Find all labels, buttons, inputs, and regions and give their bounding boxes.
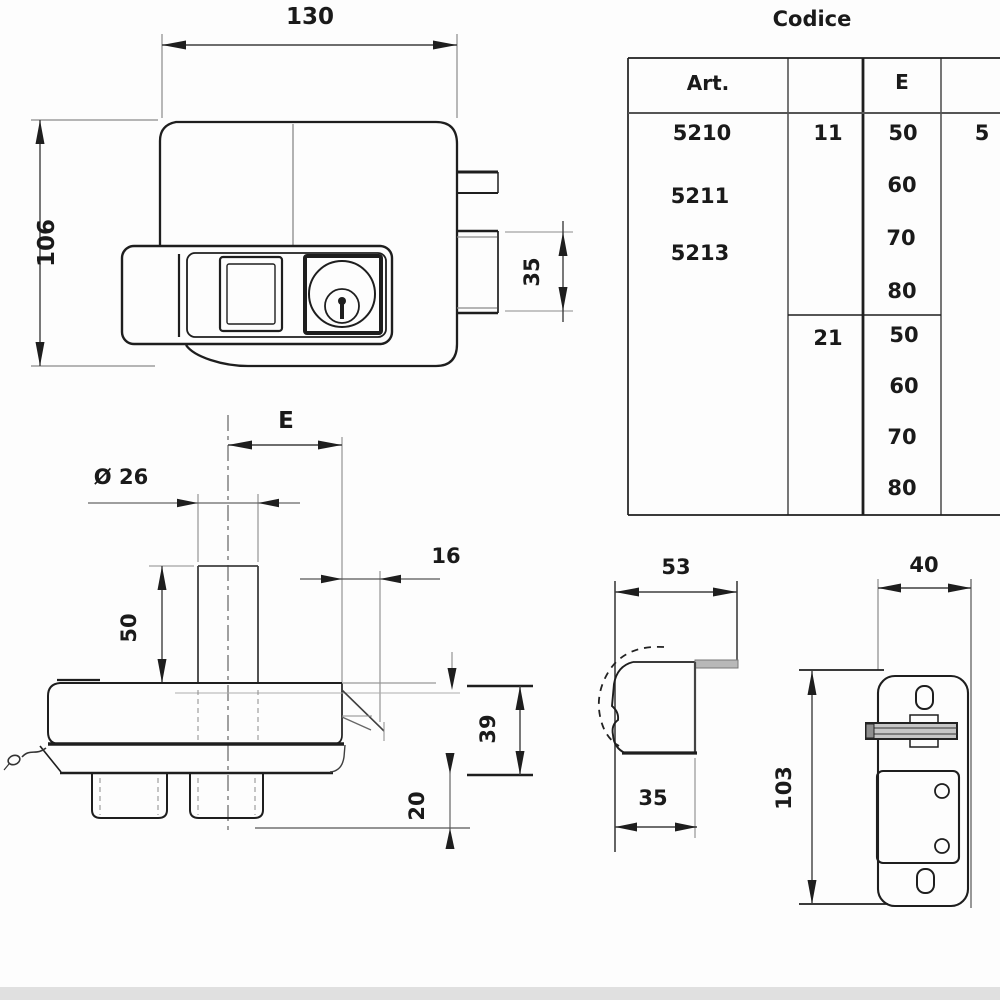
col-header-e: E [895,70,909,94]
col-header-art: Art. [687,71,730,95]
dim-height-103: 103 [772,670,888,904]
dim-feet-20: 20 [255,753,470,849]
dim-106-label: 106 [34,219,60,267]
codice-table: Codice Art. E 5210 5211 5213 11 50 60 70… [628,7,1000,515]
dim-cylinder-height-50: 50 [117,566,194,683]
dim-depth-53: 53 [615,555,737,852]
e-value: 70 [887,425,916,449]
e-value: 80 [887,476,916,500]
strike-side-view: 53 35 [599,555,738,852]
dim-20-label: 20 [405,791,429,820]
dim-latch-35: 35 [505,221,573,322]
latch-bar-tab-top [910,715,938,723]
dim-40-label: 40 [909,553,938,577]
latch-bar [866,723,957,739]
screw-hole [935,784,949,798]
technical-drawing-page: 130 106 [0,0,1000,1000]
article-code: 5213 [671,241,729,265]
article-code: 5211 [671,184,729,208]
latch-bar-tab-bottom [910,739,938,747]
mounting-slot-bottom [917,869,934,893]
mounting-foot-right [190,774,263,818]
group-key-21: 21 [813,326,842,350]
strike-plate [866,676,968,906]
dim-body-depth-39: 39 [448,652,534,775]
dim-backset-e: E [228,408,342,682]
dim-diameter-26: Ø 26 [88,465,300,562]
e-value: 60 [887,173,916,197]
e-value: 50 [888,121,917,145]
group-key-11: 11 [813,121,842,145]
keeper-tab [695,660,738,668]
article-code: 5210 [673,121,731,145]
front-view: 130 106 [31,4,573,366]
dim-width-130: 130 [162,4,457,118]
e-value: 70 [886,226,915,250]
extra-col-value: 5 [975,121,990,145]
dim-35-label: 35 [520,257,544,286]
lock-body-top-view [4,680,460,818]
control-panel [122,246,392,344]
cable-pigtail [4,748,46,770]
keyway-slot [340,301,344,319]
latch-bar-endcap [866,724,874,738]
table-title: Codice [773,7,852,31]
e-value: 50 [889,323,918,347]
bolt-bevel [342,690,384,731]
dim-103-label: 103 [772,766,796,810]
dim-e-label: E [278,408,294,434]
screw-hole [935,839,949,853]
e-value: 60 [889,374,918,398]
dim-39-label: 39 [476,714,500,743]
dim-53-label: 53 [661,555,690,579]
dim-diameter-label: Ø 26 [94,465,148,489]
page-bottom-edge [0,987,1000,1000]
lock-technical-drawing: 130 106 [0,0,1000,1000]
keeper-profile [599,647,738,753]
dim-16: 16 [300,544,461,722]
dim-35b-label: 35 [638,786,667,810]
mounting-slot-top [916,686,933,709]
dim-width-35: 35 [615,758,697,838]
strike-front-view: 40 103 [772,553,971,908]
latch-bolt-front [457,231,498,313]
upper-tab [457,172,498,193]
dim-16-label: 16 [431,544,460,568]
dim-50-label: 50 [117,613,141,642]
mounting-foot-left [92,774,167,818]
e-value: 80 [887,279,916,303]
dim-130-label: 130 [286,4,334,30]
top-view: E Ø 26 50 [4,408,533,849]
